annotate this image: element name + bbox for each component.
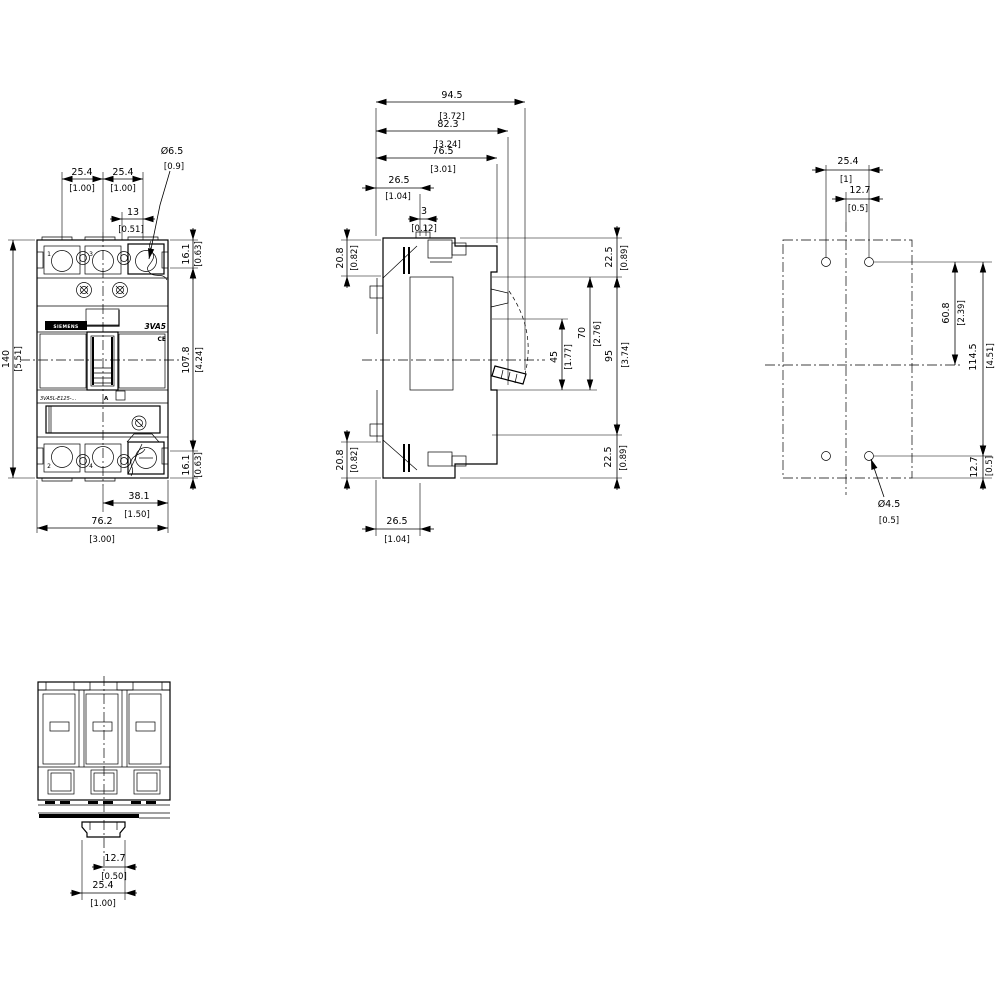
dim-term-depth-top-in: [0.82]	[350, 245, 360, 271]
dim-pitch2-mm: 25.4	[112, 167, 133, 178]
dim-depth-body-mm: 76.5	[432, 146, 453, 157]
brand-label: SIEMENS	[53, 324, 78, 330]
dim-din-zone-in: [1.04]	[385, 192, 411, 202]
dim-hole-pitch-y-mm: 114.5	[968, 343, 979, 370]
dim-height-bot-in: [0.63]	[194, 452, 204, 478]
dimensional-drawing-canvas: 1 3 SIEMENS 3VA5 CE	[0, 0, 1000, 1000]
dim-height-total-in: [5.51]	[14, 346, 24, 372]
dim-depth-body-in: [3.01]	[430, 165, 456, 175]
dim-pitch1-in: [1.00]	[69, 184, 95, 194]
dim-terminal-hole-mm: Ø6.5	[161, 146, 184, 157]
dim-pitch2-in: [1.00]	[110, 184, 136, 194]
dim-hole-edge-mm: 12.7	[969, 456, 980, 477]
dim-width-half-mm: 38.1	[128, 491, 149, 502]
dim-hole-center-mm: 12.7	[849, 185, 870, 196]
base-strip	[39, 814, 139, 818]
dim-height-top-mm: 16.1	[181, 243, 192, 264]
dim-cutout45-in: [1.77]	[564, 344, 574, 370]
dim-cutout45-mm: 45	[549, 351, 560, 363]
pole-number-1: 1	[47, 251, 51, 258]
dim-hole-pitch-x-in: [1]	[840, 175, 852, 185]
dim-din-bottom-mm: 26.5	[386, 516, 407, 527]
dim-term-depth-bot-in: [0.82]	[350, 447, 360, 473]
dim-hole-offset-in: [0.51]	[118, 225, 144, 235]
dim-din-zone-mm: 26.5	[388, 175, 409, 186]
dim-height-bot-mm: 16.1	[181, 454, 192, 475]
dim-tab-width-mm: 25.4	[92, 880, 113, 891]
dim-width-total-mm: 76.2	[91, 516, 112, 527]
dim-mid-zone-in: [3.74]	[621, 342, 631, 368]
dim-height-body-mm: 107.8	[181, 346, 192, 373]
dim-mount-hole-dia-in: [0.5]	[879, 516, 899, 526]
dim-hole-pitch-y-in: [4.51]	[986, 343, 996, 369]
catalog-number: 3VA5L-E125-...	[40, 396, 76, 402]
dim-hole-mid-y-mm: 60.8	[941, 302, 952, 323]
dim-bot-zone-mm: 22.5	[603, 446, 614, 467]
dim-mid-zone-mm: 95	[604, 350, 615, 362]
dim-term-depth-top-mm: 20.8	[335, 247, 346, 268]
pole-number-3: 3	[89, 251, 93, 258]
pole-number-4: 4	[89, 463, 93, 470]
dim-bot-zone-in: [0.89]	[619, 445, 629, 471]
dim-pitch1-mm: 25.4	[71, 167, 92, 178]
dim-hole-center-in: [0.5]	[848, 204, 868, 214]
dim-top-zone-in: [0.89]	[620, 245, 630, 271]
dim-depth-handle-mm: 82.3	[437, 119, 458, 130]
dim-terminal-hole-in: [0.9]	[164, 162, 184, 172]
dim-din-step-mm: 3	[421, 206, 427, 217]
dim-hole-edge-in: [0.5]	[985, 456, 995, 476]
dim-depth-total-mm: 94.5	[441, 90, 462, 101]
dim-hole-mid-y-in: [2.39]	[957, 300, 967, 326]
dim-width-total-in: [3.00]	[89, 535, 115, 545]
dim-width-half-in: [1.50]	[124, 510, 150, 520]
dim-cutout70-mm: 70	[577, 327, 588, 339]
dim-height-top-in: [0.63]	[194, 241, 204, 267]
dim-mount-hole-dia-mm: Ø4.5	[878, 499, 901, 510]
dim-tab-width-in: [1.00]	[90, 899, 116, 909]
pole-number-2: 2	[47, 463, 51, 470]
dim-hole-offset-mm: 13	[127, 207, 139, 218]
dim-din-bottom-in: [1.04]	[384, 535, 410, 545]
dim-top-zone-mm: 22.5	[604, 246, 615, 267]
dim-cutout70-in: [2.76]	[593, 321, 603, 347]
dim-height-total-mm: 140	[1, 350, 12, 368]
dim-term-depth-bot-mm: 20.8	[335, 449, 346, 470]
series-label: 3VA5	[144, 322, 166, 331]
dim-din-step-in: [0.12]	[411, 224, 437, 234]
dim-tab-half-mm: 12.7	[104, 853, 125, 864]
paper-background	[0, 0, 1000, 1000]
rating-label: A	[104, 396, 109, 402]
dim-height-body-in: [4.24]	[195, 347, 205, 373]
dim-hole-pitch-x-mm: 25.4	[837, 156, 858, 167]
